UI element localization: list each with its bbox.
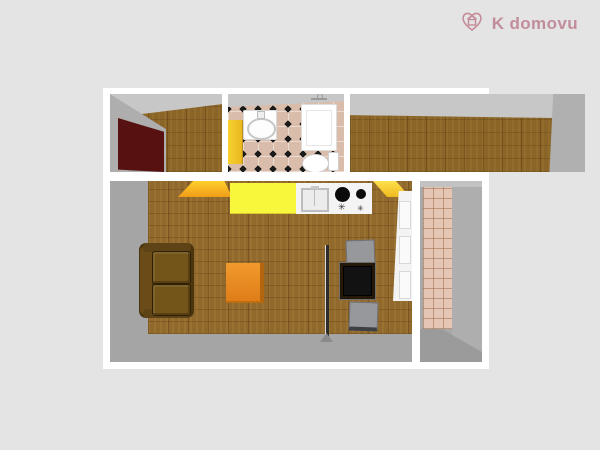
door-panel	[399, 201, 411, 229]
wall-face-right	[452, 181, 482, 362]
hallway-tile-floor	[423, 187, 452, 329]
room-top-left	[110, 94, 222, 172]
brand-logo-text: K domovu	[492, 14, 578, 34]
stove-burner-small	[356, 189, 366, 199]
floor-plan: ✳ ✳	[103, 88, 489, 369]
bathroom-door	[228, 120, 243, 164]
shower-tray	[301, 104, 337, 151]
kitchen-counter	[230, 183, 298, 214]
dining-table	[339, 262, 376, 300]
toilet-cistern	[328, 152, 339, 171]
door-panel	[399, 271, 411, 299]
sink-faucet	[311, 186, 319, 189]
kitchen-sink	[301, 188, 329, 212]
sink-and-stove-unit: ✳ ✳	[296, 183, 372, 214]
brand-logo: K domovu	[459, 9, 578, 38]
sofa	[139, 243, 194, 318]
coffee-table	[226, 263, 264, 303]
sink-divider	[314, 190, 315, 206]
door-panel	[399, 236, 411, 264]
bathroom	[228, 94, 344, 172]
sofa-cushion	[152, 284, 191, 316]
washbasin-bowl	[247, 118, 276, 140]
stove-knob-icon: ✳	[338, 203, 346, 212]
stove-knob-icon: ✳	[357, 204, 364, 213]
shower-tray-inner	[306, 110, 332, 146]
room-top-right	[350, 94, 585, 172]
wall-face-top	[350, 94, 585, 118]
heart-house-icon	[459, 9, 485, 38]
stove-burner-large	[335, 187, 350, 202]
dining-table-top	[343, 266, 372, 296]
washbasin	[243, 110, 277, 140]
wall-face-right	[548, 94, 585, 172]
dining-chair	[349, 302, 379, 332]
washbasin-faucet	[257, 111, 265, 119]
toilet-bowl	[302, 154, 329, 172]
hallway	[420, 181, 482, 362]
sofa-cushion	[152, 251, 191, 284]
sofa-backrest	[140, 246, 152, 315]
partition-base	[320, 333, 333, 342]
thin-partition	[325, 245, 329, 337]
living-room-kitchen: ✳ ✳	[110, 181, 412, 362]
